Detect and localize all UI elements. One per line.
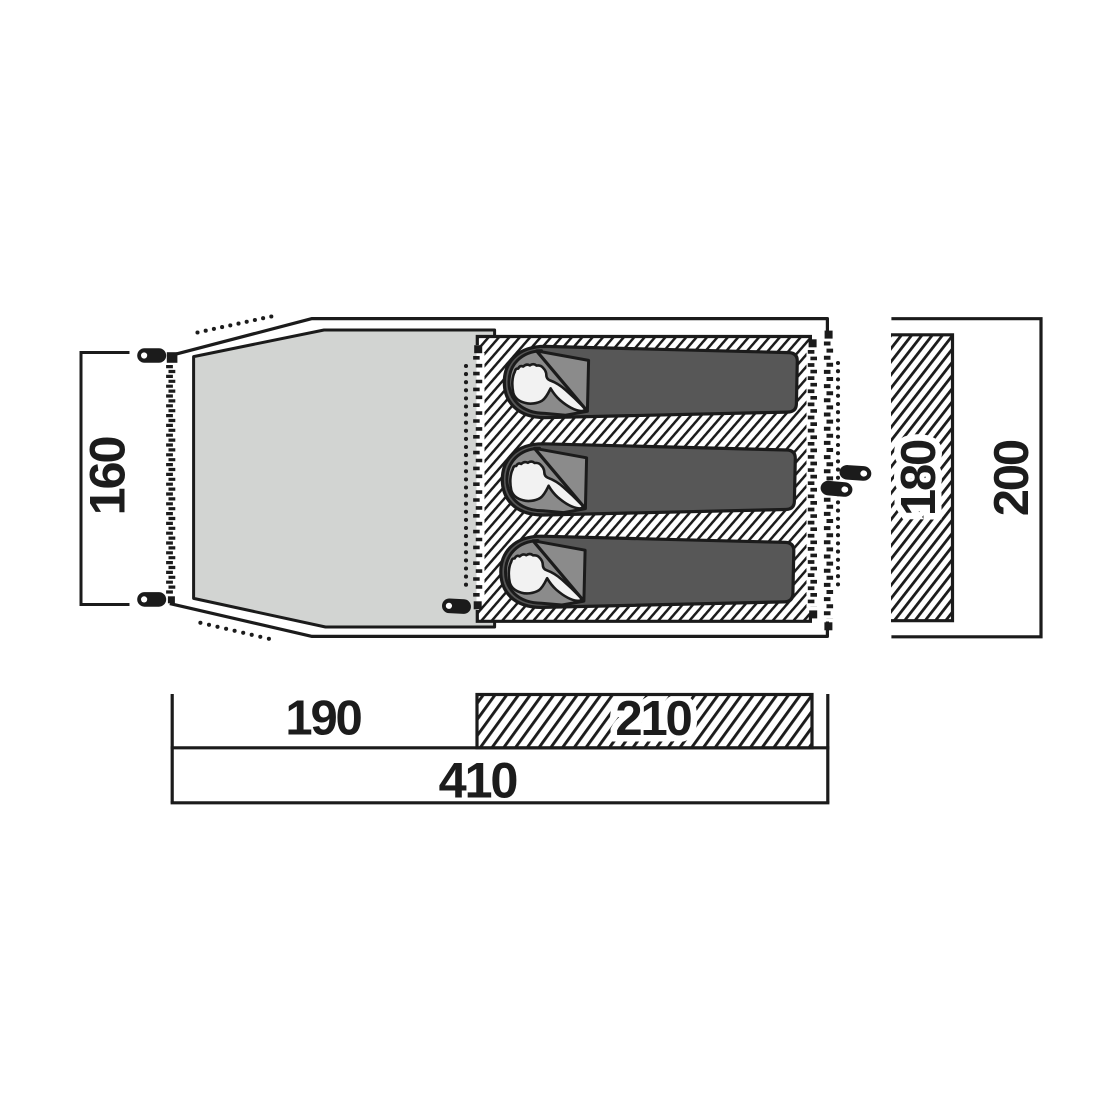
svg-text:160: 160	[79, 437, 136, 516]
svg-text:180: 180	[892, 440, 946, 516]
svg-text:410: 410	[439, 752, 518, 809]
svg-text:210: 210	[615, 692, 691, 746]
svg-text:200: 200	[985, 440, 1039, 516]
svg-text:190: 190	[285, 692, 361, 746]
